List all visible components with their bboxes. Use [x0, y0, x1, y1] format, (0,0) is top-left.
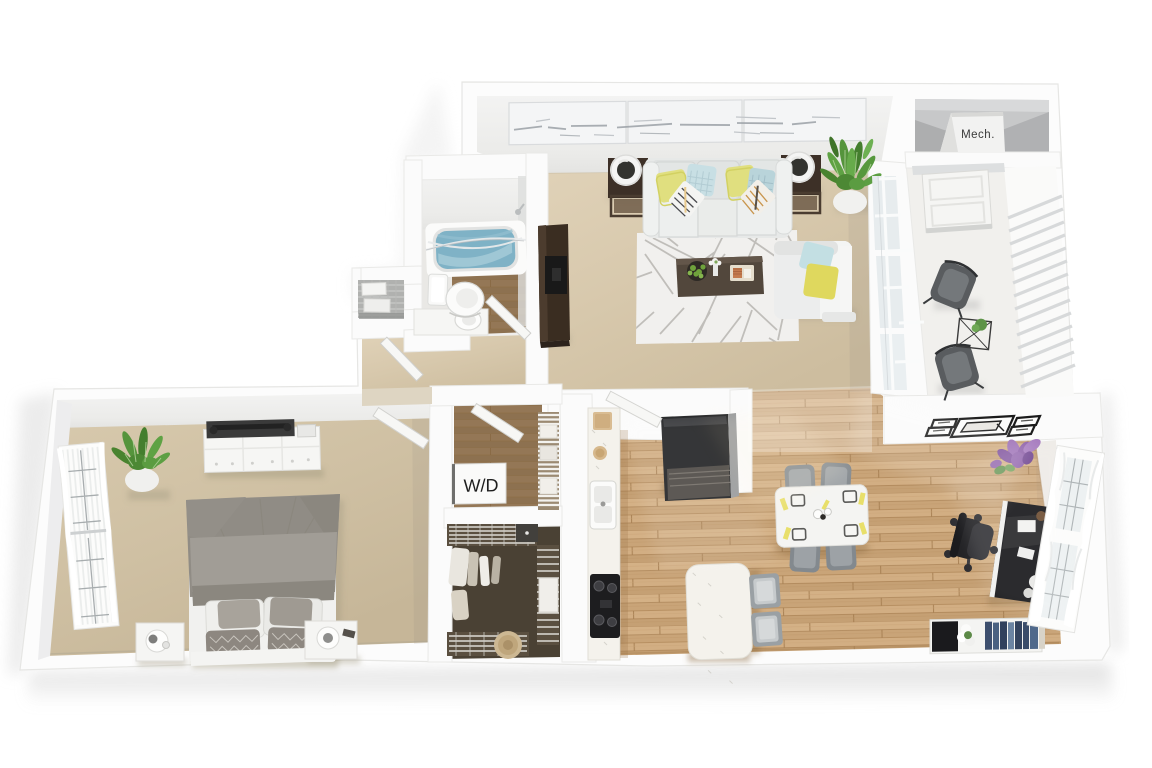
svg-text:Mech.: Mech. [961, 129, 995, 141]
svg-text:W/D: W/D [464, 475, 499, 496]
